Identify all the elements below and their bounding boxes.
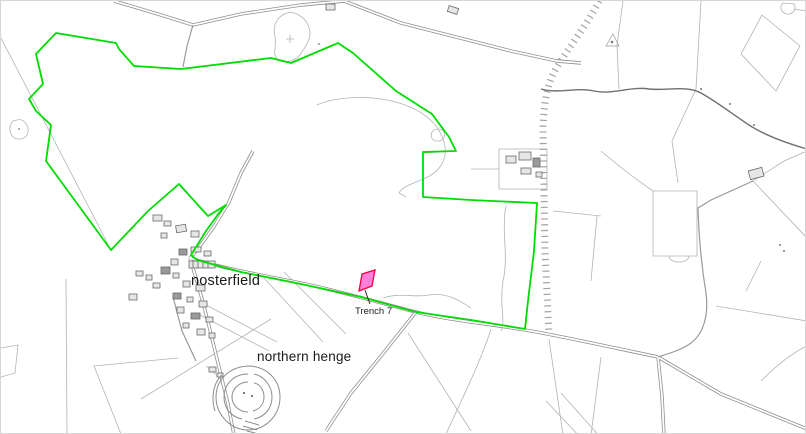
- map-canvas: nosterfield northern henge Trench 7: [1, 1, 806, 434]
- site-location-map: nosterfield northern henge Trench 7: [0, 0, 806, 434]
- field-boundaries: [1, 1, 806, 434]
- roads-casing: [114, 1, 806, 434]
- site-boundary-outline: [29, 33, 537, 329]
- label-trench-7: Trench 7: [355, 306, 392, 317]
- trench-7-polygon: [359, 270, 375, 291]
- hatched-trackway: [543, 1, 599, 335]
- road-top-center: [344, 1, 581, 63]
- stream-line: [541, 88, 806, 149]
- lane-village-back: [173, 297, 196, 361]
- label-nosterfield: nosterfield: [191, 273, 260, 289]
- track-to-farm: [658, 181, 753, 357]
- tree-symbols: [18, 34, 785, 252]
- label-northern-henge: northern henge: [257, 349, 351, 364]
- minor-tracks: [173, 25, 753, 361]
- lane-top: [183, 25, 193, 67]
- buildings: [129, 4, 764, 377]
- road-southeast: [658, 357, 806, 429]
- trench-7-leader-line: [365, 290, 370, 304]
- hatch-ticks: [543, 1, 599, 335]
